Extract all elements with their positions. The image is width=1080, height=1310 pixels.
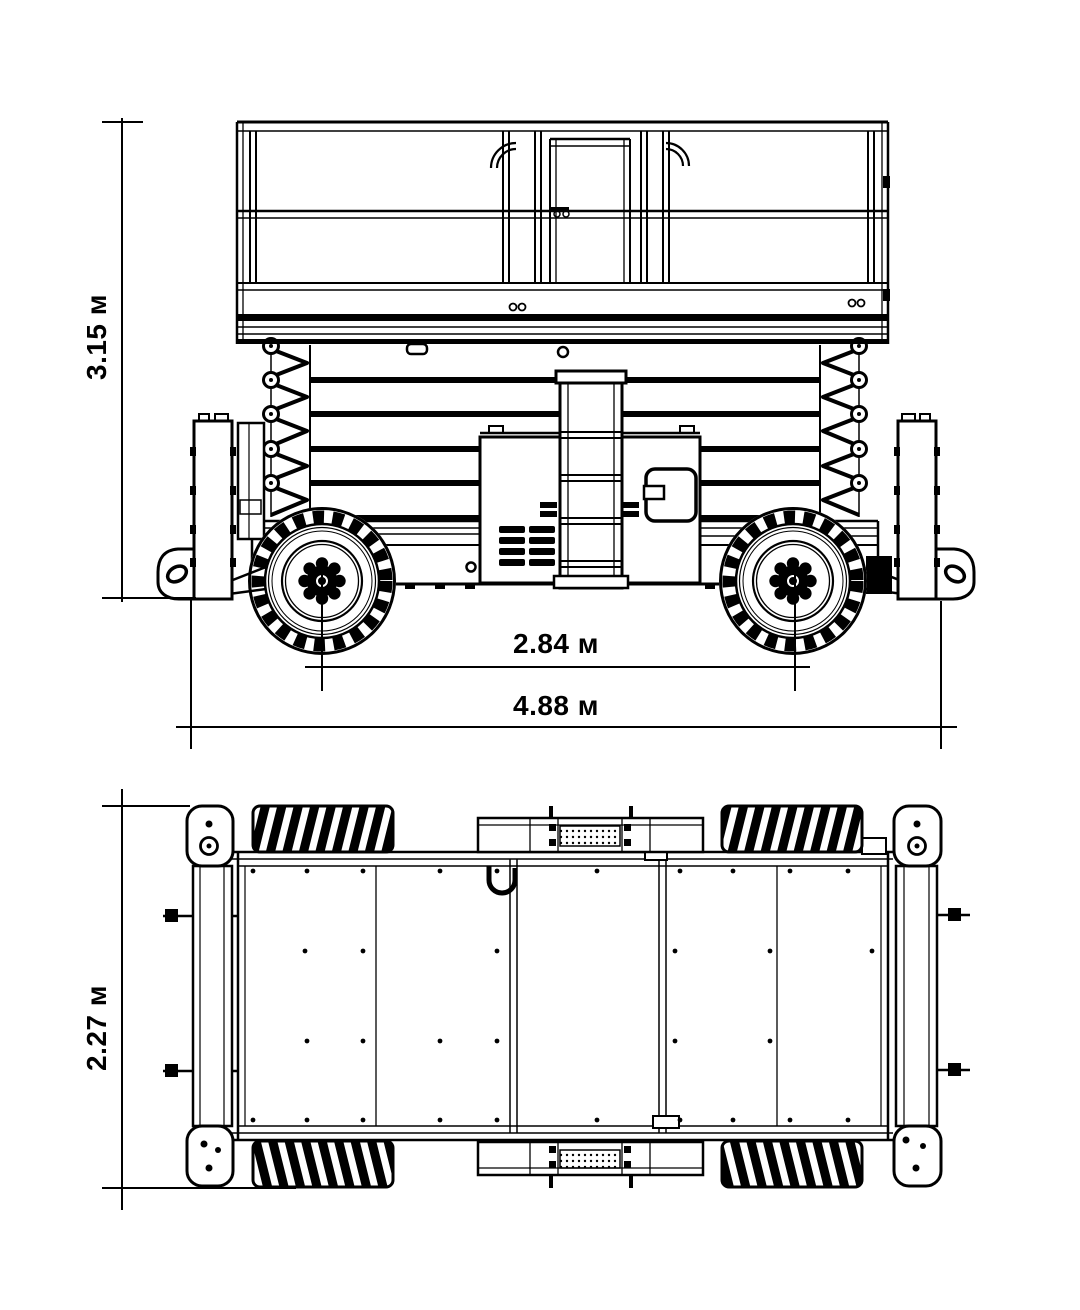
width-label: 2.27 м bbox=[81, 985, 112, 1071]
pad-cap-top bbox=[187, 806, 233, 866]
deck-panel-seams bbox=[376, 859, 777, 1133]
pad-cap-top bbox=[894, 806, 941, 866]
wheel-hub bbox=[769, 557, 816, 604]
pad-cap-bottom bbox=[187, 1126, 233, 1186]
dimension-height: 3.15 м bbox=[81, 118, 196, 602]
wheel-right bbox=[719, 507, 867, 655]
side-view: 3.15 м 2.84 м 4.88 м bbox=[81, 118, 974, 749]
underside-clip bbox=[407, 344, 427, 354]
step-assembly-bottom bbox=[478, 1142, 703, 1188]
perforated-tread bbox=[560, 1150, 620, 1168]
length-label: 4.88 м bbox=[513, 690, 599, 721]
toe-board bbox=[237, 314, 888, 321]
tow-lug-right bbox=[936, 549, 974, 599]
ground-control-box bbox=[238, 423, 264, 539]
pad-rail-left bbox=[163, 806, 238, 1186]
platform-floor-edge bbox=[237, 339, 888, 344]
step-assembly-top bbox=[478, 806, 703, 852]
deck-latch-bottom bbox=[653, 1116, 679, 1128]
deck-frame bbox=[232, 838, 893, 1140]
center-mast bbox=[554, 371, 628, 588]
top-view: 2.27 м bbox=[81, 789, 970, 1210]
tie-down-hook bbox=[489, 866, 515, 893]
scissor-lift-technical-drawing: 3.15 м 2.84 м 4.88 м bbox=[0, 0, 1080, 1310]
outrigger-pad-right bbox=[866, 414, 940, 599]
door-handle bbox=[644, 486, 664, 499]
tire-rear-left bbox=[253, 1141, 393, 1187]
underside-bolt bbox=[558, 347, 568, 357]
tire-front-left bbox=[253, 806, 393, 852]
pad-rail-right bbox=[894, 806, 970, 1186]
height-label: 3.15 м bbox=[81, 294, 112, 380]
scissor-links-right bbox=[823, 346, 859, 517]
tow-lug-left bbox=[158, 549, 196, 599]
perforated-tread bbox=[560, 826, 620, 846]
tire-front-right bbox=[722, 806, 862, 852]
wheelbase-label: 2.84 м bbox=[513, 628, 599, 659]
platform-guardrails bbox=[237, 122, 890, 357]
corner-bracket bbox=[862, 838, 886, 854]
scissor-links-left bbox=[271, 346, 307, 517]
tire-rear-right bbox=[722, 1141, 862, 1187]
pad-cap-bottom bbox=[894, 1126, 941, 1186]
bolt-dots bbox=[251, 869, 875, 1123]
chassis-bolt bbox=[467, 563, 476, 572]
